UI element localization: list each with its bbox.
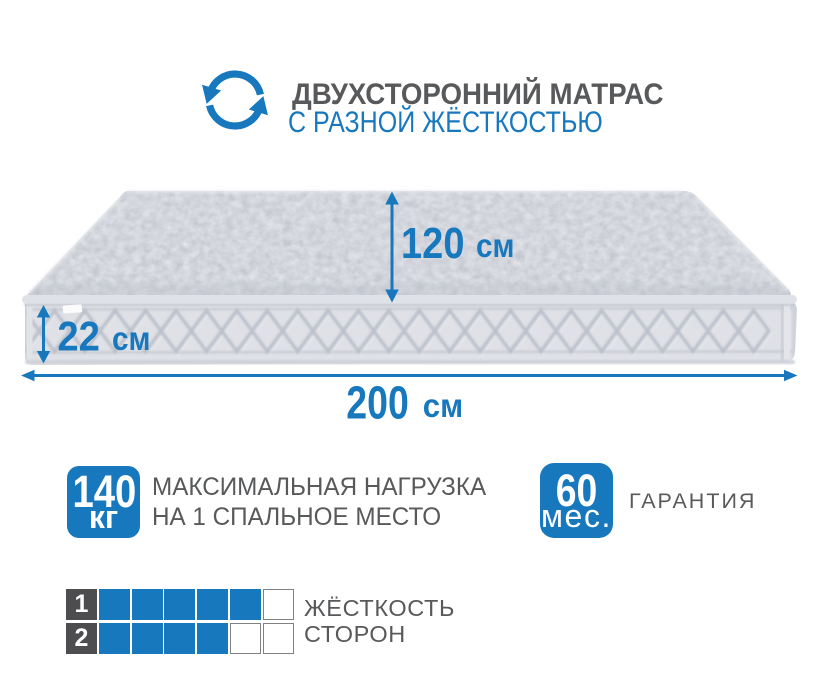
svg-text:22: 22 — [57, 313, 100, 360]
svg-text:120: 120 — [401, 219, 465, 268]
svg-text:см: см — [112, 320, 151, 357]
svg-text:см: см — [476, 227, 515, 264]
svg-text:см: см — [423, 388, 463, 425]
svg-text:200: 200 — [346, 377, 409, 429]
